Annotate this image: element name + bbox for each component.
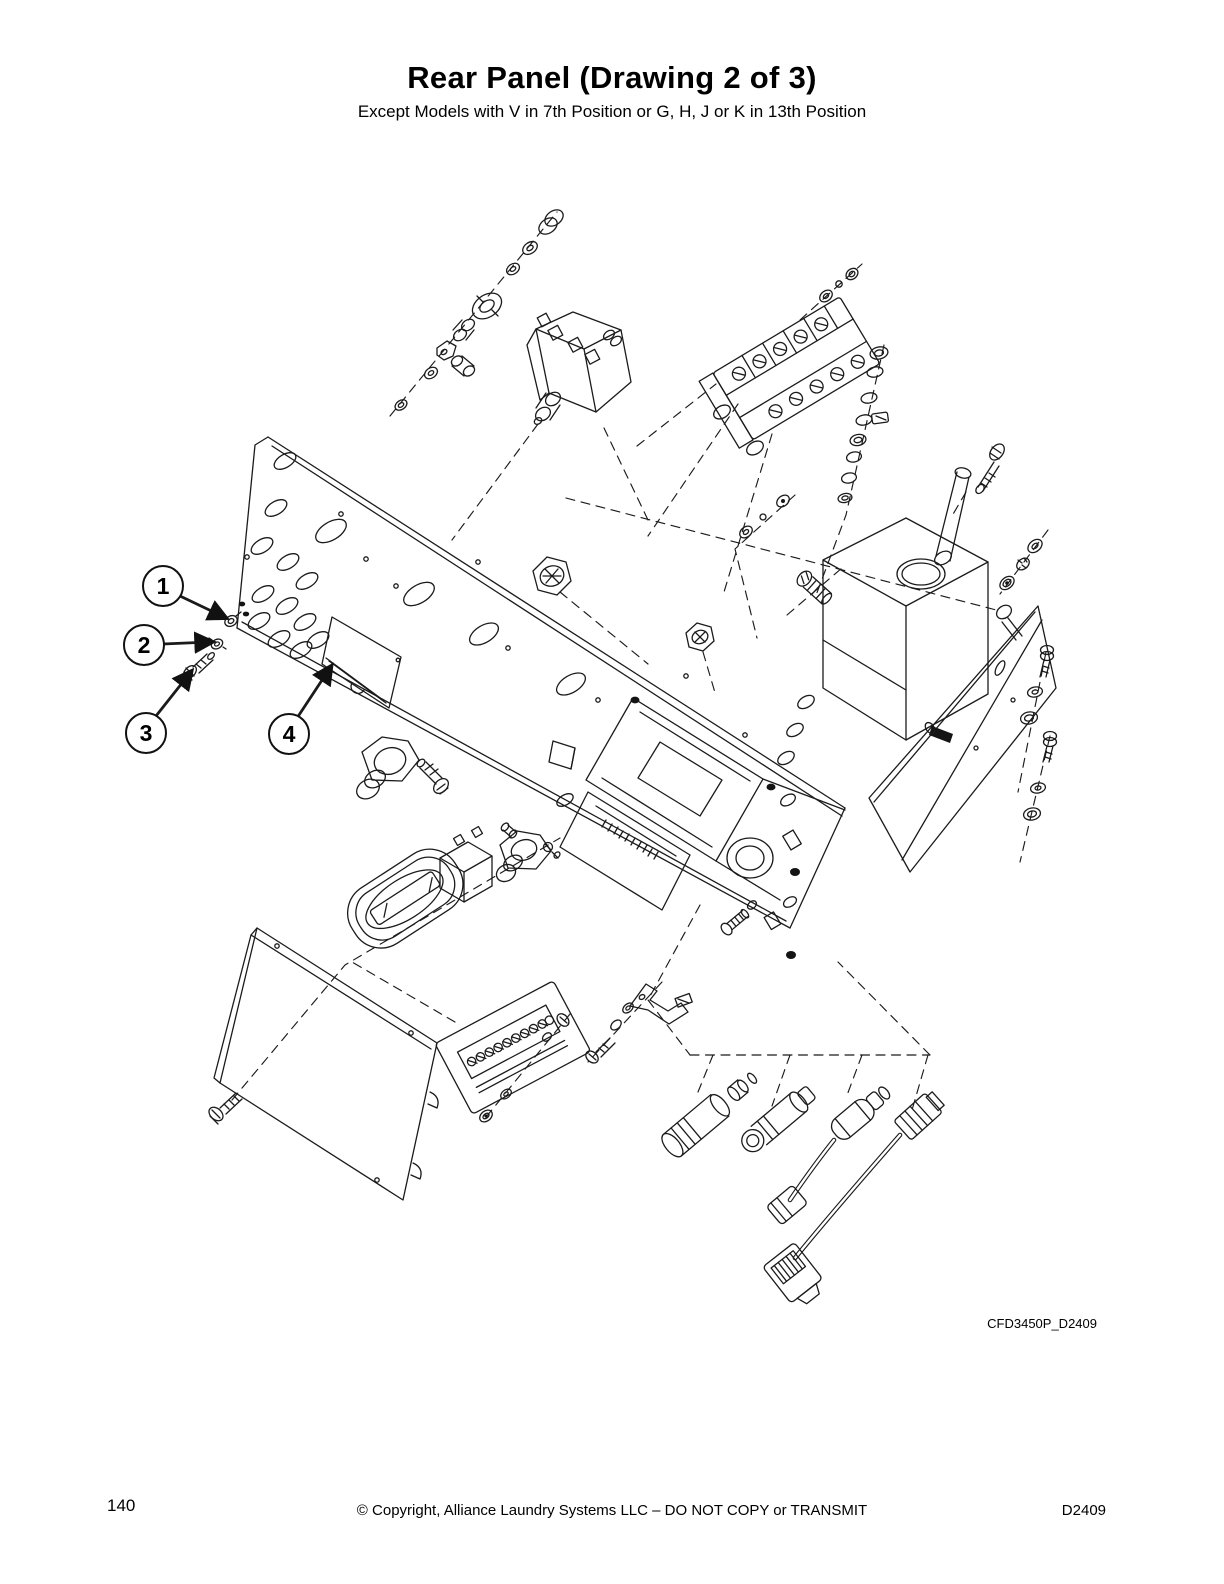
cable-gland-large xyxy=(353,737,419,803)
bolt-above-post xyxy=(974,441,1007,495)
oval-bezel xyxy=(336,838,474,960)
cable-assembly-1 xyxy=(658,1066,763,1161)
screw-bracket xyxy=(719,907,751,937)
item-2-washer xyxy=(209,637,226,651)
bolt-chain-d xyxy=(1019,646,1053,726)
side-panel xyxy=(869,602,1056,872)
terminal-block xyxy=(699,297,880,448)
fastener-chain-right xyxy=(837,345,889,504)
callout-2-label: 2 xyxy=(138,632,151,659)
callout-4: 4 xyxy=(268,713,310,755)
access-cover xyxy=(206,928,438,1200)
locknut-small xyxy=(686,623,714,651)
callout-1: 1 xyxy=(142,565,184,607)
control-box xyxy=(823,441,1045,740)
cover-screw xyxy=(206,1093,242,1124)
terminal-block-foot xyxy=(744,438,766,458)
locknut-large xyxy=(533,557,571,595)
cable-assembly-2 xyxy=(737,1083,819,1157)
cable-assembly-3 xyxy=(766,1081,895,1225)
cover-plate-item4 xyxy=(322,617,401,708)
terminal-block-foot xyxy=(711,402,733,422)
exploded-parts-diagram xyxy=(0,0,1224,1584)
switch-block xyxy=(440,827,492,902)
fastener-trio-mid xyxy=(737,493,791,541)
callout-3-label: 3 xyxy=(140,720,153,747)
bolt-mid-right xyxy=(794,568,834,607)
manual-page: Rear Panel (Drawing 2 of 3) Except Model… xyxy=(0,0,1224,1584)
callout-4-label: 4 xyxy=(283,721,296,748)
mounting-bracket xyxy=(560,693,845,959)
screw-small-1 xyxy=(500,822,518,840)
transformer xyxy=(527,312,631,426)
ground-bracket xyxy=(583,984,692,1065)
rear-panel xyxy=(237,437,845,928)
cable-gland-small xyxy=(493,831,551,885)
callout-3: 3 xyxy=(125,712,167,754)
leader-lines xyxy=(232,212,1050,1122)
terminal-strip xyxy=(435,981,591,1115)
fastener-chain-top-left xyxy=(393,207,566,413)
washer-chain-box-right xyxy=(997,537,1044,593)
callout-1-label: 1 xyxy=(157,573,170,600)
bolt-beside-gland xyxy=(416,758,452,797)
callout-2: 2 xyxy=(123,624,165,666)
